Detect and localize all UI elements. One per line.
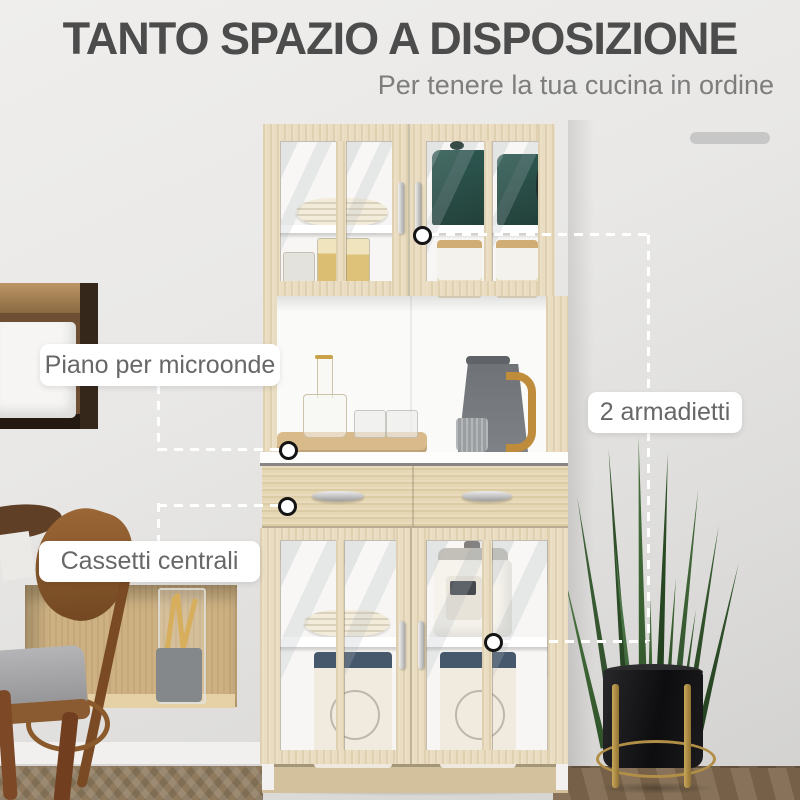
cabinet-door-handle xyxy=(399,621,405,669)
glass-pane xyxy=(344,540,398,752)
callout-dot-counter xyxy=(279,441,298,460)
callout-line xyxy=(158,448,280,451)
page-title: TANTO SPAZIO A DISPOSIZIONE xyxy=(0,13,800,65)
callout-line xyxy=(647,432,650,641)
cabinet-base xyxy=(262,764,568,793)
kettle-lid xyxy=(466,356,510,365)
gray-cup xyxy=(456,418,488,452)
callout-line xyxy=(157,385,160,451)
callout-line xyxy=(647,235,650,393)
door-seam xyxy=(410,528,412,764)
baseboard xyxy=(0,742,262,766)
drawer-band xyxy=(262,464,568,530)
drinking-glass xyxy=(386,410,418,438)
carafe-body xyxy=(303,394,347,438)
top-cabinet-frame xyxy=(263,124,280,296)
drawer-seam xyxy=(412,464,414,526)
glass-pane xyxy=(426,141,486,283)
callout-dot-top-cabinet xyxy=(413,226,432,245)
drawer-handle xyxy=(312,491,364,501)
plant-stand-leg xyxy=(684,684,691,788)
countertop xyxy=(260,452,568,466)
callout-line xyxy=(430,233,650,236)
page-subtitle: Per tenere la tua cucina in ordine xyxy=(378,70,774,101)
cabinet-door-handle xyxy=(418,621,424,669)
carafe-gold-rim xyxy=(315,355,333,359)
cabinet-foot xyxy=(262,764,274,790)
door-mullion xyxy=(484,141,492,281)
top-cabinet-frame xyxy=(538,124,555,296)
glass-pane xyxy=(280,540,338,752)
callout-label-microwave-shelf: Piano per microonde xyxy=(40,344,280,386)
drawer-handle xyxy=(462,491,512,501)
glass-pane xyxy=(346,141,394,283)
callout-label-text: Cassetti centrali xyxy=(61,547,239,576)
gray-bar xyxy=(690,132,770,144)
callout-label-text: 2 armadietti xyxy=(600,398,731,427)
callout-dot-bottom-cabinet xyxy=(484,633,503,652)
cabinet-foot xyxy=(556,764,568,790)
hutch-side-panel xyxy=(546,296,568,454)
drinking-glass xyxy=(354,410,386,438)
gray-cup-holder xyxy=(156,648,202,702)
plant-stand-leg xyxy=(612,684,619,788)
glass-pane xyxy=(426,540,484,752)
door-seam xyxy=(408,124,410,296)
glass-pane xyxy=(280,141,338,283)
bottom-cabinet-frame xyxy=(548,528,568,764)
callout-dot-drawer xyxy=(278,497,297,516)
cabinet-door-handle xyxy=(398,182,404,234)
wall-shadow xyxy=(568,120,594,770)
callout-label-central-drawers: Cassetti centrali xyxy=(39,541,260,582)
door-mullion xyxy=(336,540,344,750)
product-marketing-image: TANTO SPAZIO A DISPOSIZIONE Per tenere l… xyxy=(0,0,800,800)
callout-line xyxy=(158,504,279,507)
callout-label-two-cabinets: 2 armadietti xyxy=(588,392,742,433)
kettle-wood-handle xyxy=(506,372,536,452)
callout-line xyxy=(501,640,647,643)
dining-table-leg xyxy=(0,531,35,581)
door-mullion xyxy=(336,141,346,281)
carafe-neck xyxy=(317,357,333,398)
wood-floor-left xyxy=(0,762,263,800)
bottom-cabinet-frame xyxy=(260,528,280,764)
callout-label-text: Piano per microonde xyxy=(45,351,276,380)
callout-line xyxy=(157,503,160,542)
